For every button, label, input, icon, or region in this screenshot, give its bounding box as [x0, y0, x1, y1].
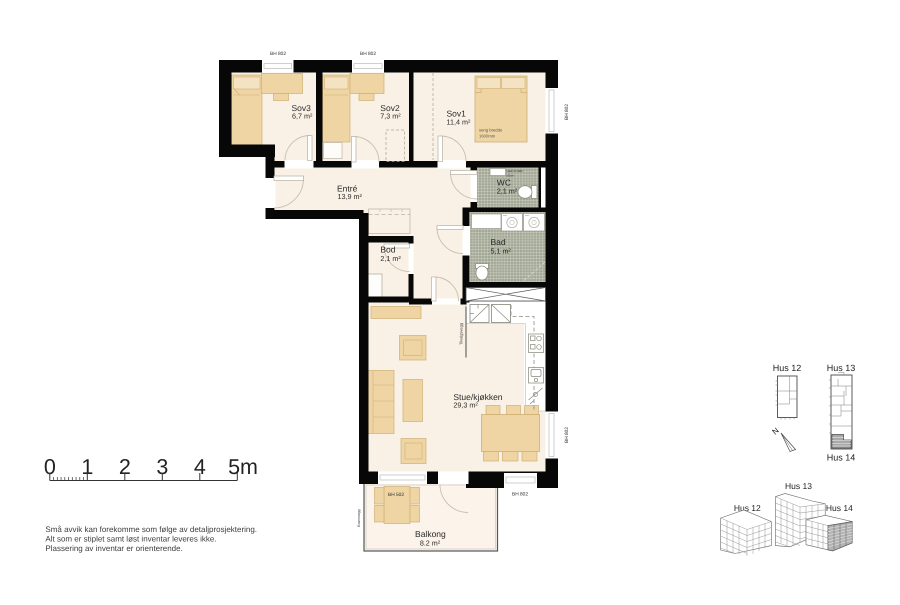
svg-text:29,3 m²: 29,3 m²	[453, 401, 478, 410]
svg-text:Hus 13: Hus 13	[785, 481, 812, 491]
svg-text:2,1 m²: 2,1 m²	[380, 254, 401, 263]
svg-text:Små avvik kan forekomme som fø: Små avvik kan forekomme som følge av det…	[45, 525, 257, 534]
svg-text:5,1 m²: 5,1 m²	[491, 247, 512, 256]
svg-text:BH 802: BH 802	[270, 51, 286, 57]
svg-text:Hus 13: Hus 13	[827, 363, 856, 373]
svg-text:Hus 14: Hus 14	[826, 503, 853, 513]
svg-text:vask bredde: vask bredde	[507, 169, 524, 173]
svg-text:BH 802: BH 802	[564, 104, 570, 120]
svg-text:Bad: Bad	[491, 237, 506, 247]
svg-text:1600mm: 1600mm	[479, 134, 496, 139]
svg-text:BH 802: BH 802	[512, 492, 528, 498]
svg-text:2,1 m²: 2,1 m²	[497, 186, 518, 195]
svg-text:Bod: Bod	[380, 245, 395, 255]
svg-text:BH 502: BH 502	[388, 492, 404, 498]
svg-text:BH 802: BH 802	[564, 427, 570, 443]
svg-text:Plassering av inventar er orie: Plassering av inventar er orienterende.	[45, 544, 182, 553]
svg-text:13,9 m²: 13,9 m²	[338, 192, 363, 201]
svg-text:Balkong: Balkong	[415, 529, 446, 539]
svg-text:Tilvalgsvegg: Tilvalgsvegg	[459, 323, 464, 345]
svg-text:Alt som er stiplet samt løst i: Alt som er stiplet samt løst inventar le…	[45, 535, 216, 544]
svg-text:Hus 12: Hus 12	[773, 363, 802, 373]
svg-text:5m: 5m	[228, 455, 258, 479]
svg-text:Brannvegg: Brannvegg	[357, 509, 361, 526]
svg-text:BH 802: BH 802	[360, 51, 376, 57]
svg-text:11,4 m²: 11,4 m²	[447, 118, 471, 127]
svg-text:8.2 m²: 8.2 m²	[420, 539, 441, 548]
svg-text:Hus 14: Hus 14	[827, 453, 856, 463]
svg-text:seng bredde: seng bredde	[479, 128, 503, 133]
svg-text:6,7 m²: 6,7 m²	[292, 112, 313, 121]
svg-text:7,3 m²: 7,3 m²	[380, 112, 401, 121]
